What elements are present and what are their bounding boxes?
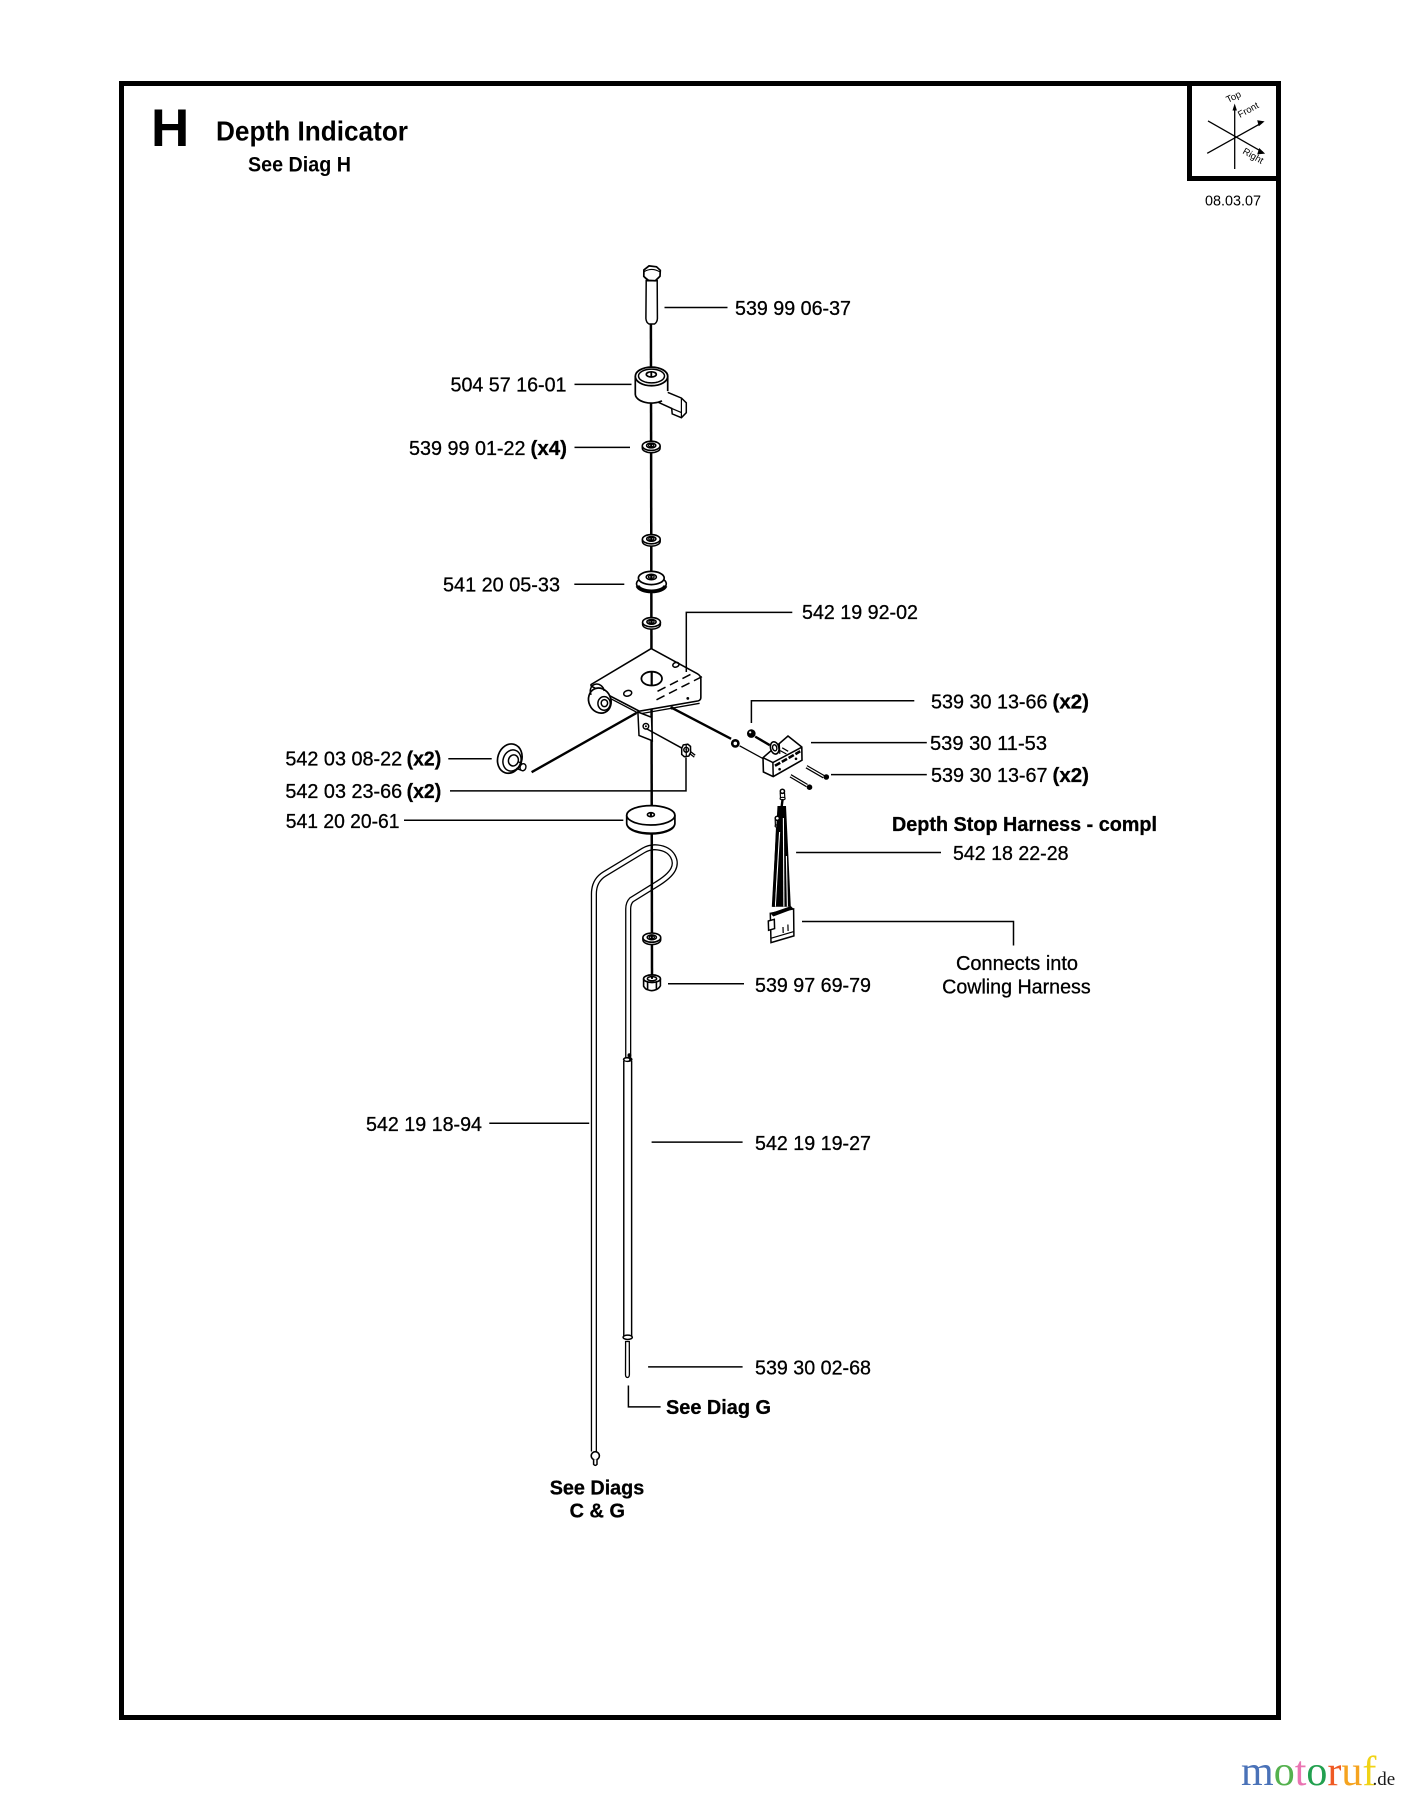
svg-text:539 30 02-68: 539 30 02-68 (755, 1357, 871, 1380)
svg-text:C & G: C & G (570, 1500, 625, 1523)
svg-text:542 18 22-28: 542 18 22-28 (953, 842, 1069, 865)
svg-text:541 20 05-33: 541 20 05-33 (443, 574, 560, 597)
svg-text:See Diag H: See Diag H (248, 153, 351, 177)
svg-text:u: u (1341, 1749, 1362, 1795)
svg-text:542 03 08-22: 542 03 08-22 (285, 748, 402, 771)
svg-text:(x2): (x2) (1053, 764, 1090, 787)
svg-text:504 57 16-01: 504 57 16-01 (451, 374, 567, 397)
svg-text:542 19 92-02: 542 19 92-02 (802, 601, 918, 624)
svg-text:See Diag G: See Diag G (666, 1396, 771, 1419)
svg-text:(x4): (x4) (531, 437, 568, 460)
svg-text:(x2): (x2) (407, 748, 442, 771)
svg-text:542 19 18-94: 542 19 18-94 (366, 1113, 482, 1136)
svg-text:m: m (1241, 1749, 1274, 1795)
svg-text:H: H (151, 99, 189, 158)
svg-text:539 99 01-22: 539 99 01-22 (409, 437, 526, 460)
svg-text:539 99 06-37: 539 99 06-37 (735, 297, 851, 320)
svg-text:t: t (1295, 1749, 1307, 1795)
svg-text:542 03 23-66: 542 03 23-66 (285, 780, 402, 803)
svg-text:539 30 13-67: 539 30 13-67 (931, 764, 1048, 787)
svg-text:o: o (1274, 1749, 1295, 1795)
svg-text:Connects into: Connects into (956, 952, 1078, 975)
svg-text:Depth Indicator: Depth Indicator (216, 116, 408, 147)
svg-text:o: o (1306, 1749, 1327, 1795)
svg-text:539 30 13-66: 539 30 13-66 (931, 691, 1048, 714)
svg-text:542 19 19-27: 542 19 19-27 (755, 1132, 871, 1155)
svg-text:539 97 69-79: 539 97 69-79 (755, 974, 871, 997)
svg-text:539 30 11-53: 539 30 11-53 (930, 732, 1047, 755)
svg-text:(x2): (x2) (1053, 691, 1090, 714)
svg-text:Depth Stop Harness - compl: Depth Stop Harness - compl (892, 813, 1157, 836)
svg-text:Cowling Harness: Cowling Harness (942, 976, 1091, 999)
svg-text:08.03.07: 08.03.07 (1205, 194, 1261, 210)
svg-text:r: r (1327, 1749, 1341, 1795)
svg-text:541 20 20-61: 541 20 20-61 (286, 810, 400, 833)
svg-text:(x2): (x2) (407, 780, 442, 803)
svg-text:See Diags: See Diags (550, 1477, 645, 1500)
svg-text:.de: .de (1373, 1769, 1396, 1790)
